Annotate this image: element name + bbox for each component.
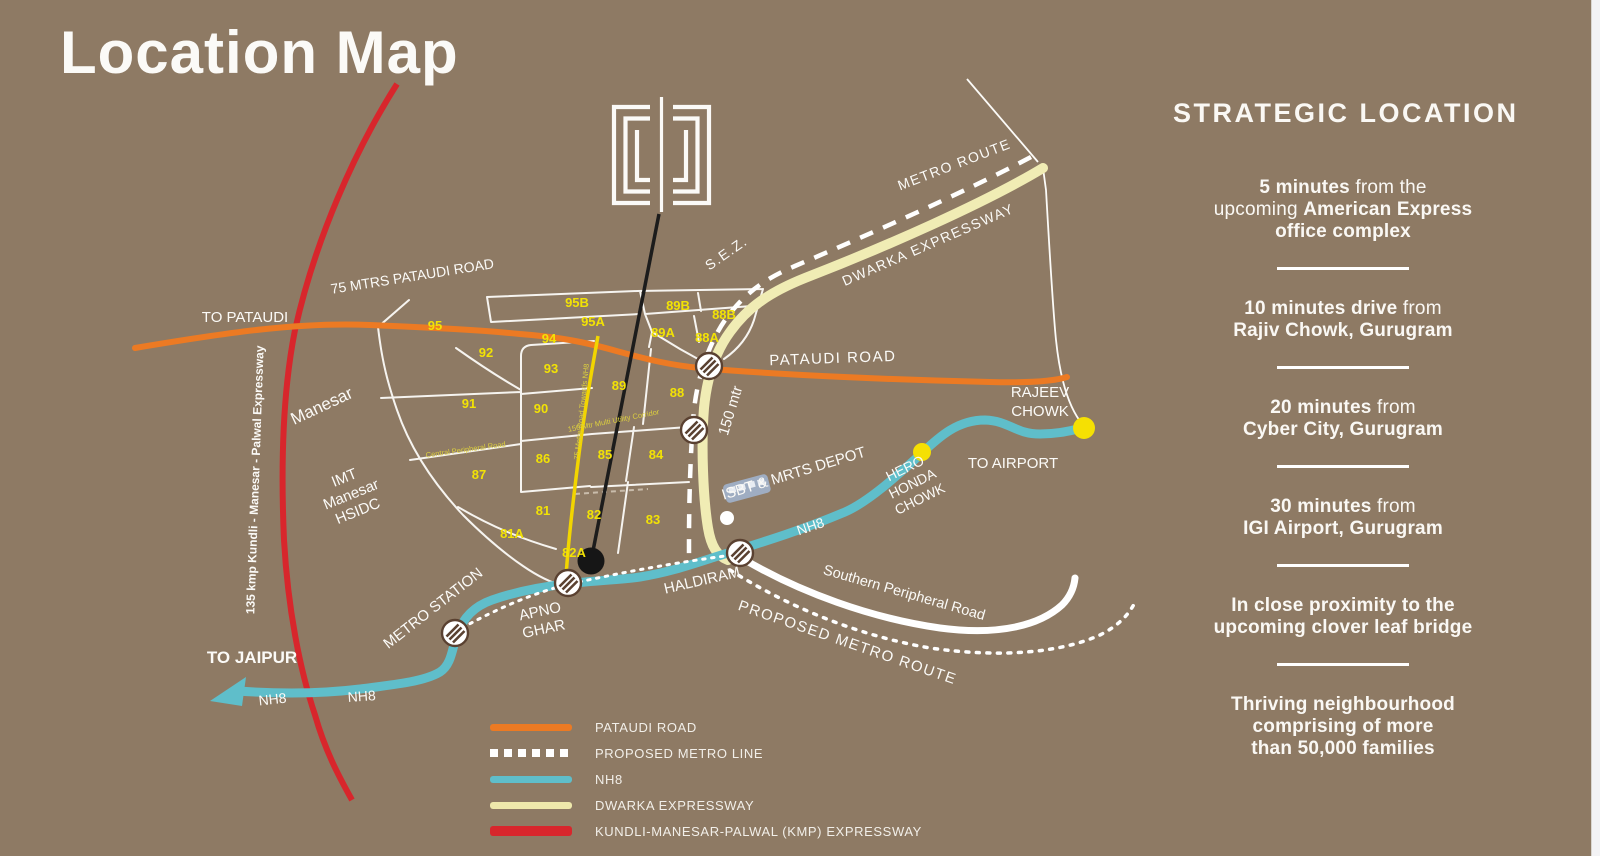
strategic-item-4: 30 minutes fromIGI Airport, Gurugram [1173,496,1513,540]
sector-label-95A: 95A [581,314,605,329]
sector-label-95: 95 [428,318,442,333]
label-proposed-metro-route: PROPOSED METRO ROUTE [736,597,959,688]
legend-swatch [490,724,572,731]
metro-station-icon [696,353,722,379]
metro-station-icon [727,540,753,566]
right-edge-strip [1591,0,1600,856]
legend-row: KUNDLI-MANESAR-PALWAL (KMP) EXPRESSWAY [490,818,922,844]
panel-divider [1277,663,1409,666]
legend-label: PATAUDI ROAD [595,720,697,735]
panel-divider [1277,564,1409,567]
strategic-item-6: Thriving neighbourhoodcomprising of more… [1173,694,1513,760]
label-nh8-a: NH8 [258,690,288,709]
sector-label-86: 86 [536,451,550,466]
label-rajeev-chowk-1: RAJEEV [1011,384,1069,401]
sector-label-94: 94 [542,331,557,346]
label-pataudi-road: PATAUDI ROAD [769,348,897,369]
legend-label: KUNDLI-MANESAR-PALWAL (KMP) EXPRESSWAY [595,824,922,839]
panel-divider [1277,465,1409,468]
sector-label-88B: 88B [712,307,736,322]
rajeev-chowk-dot [1073,417,1095,439]
legend-label: DWARKA EXPRESSWAY [595,798,754,813]
nh8-arrowhead [210,677,246,706]
legend-label: PROPOSED METRO LINE [595,746,763,761]
strategic-item-2: 10 minutes drive fromRajiv Chowk, Gurugr… [1173,298,1513,342]
label-central-peripheral-road: Central Peripheral Road [425,439,506,459]
minor-roads [967,79,1083,425]
sector-label-87: 87 [472,467,486,482]
panel-divider [1277,267,1409,270]
strategic-location-panel: STRATEGIC LOCATION 5 minutes from theupc… [1173,98,1513,760]
strategic-heading: STRATEGIC LOCATION [1173,98,1513,129]
label-metro-route: METRO ROUTE [895,135,1013,193]
sector-label-82A: 82A [562,545,586,560]
sector-label-84: 84 [649,447,664,462]
metro-station-icon [442,620,468,646]
sector-label-93: 93 [544,361,558,376]
label-75-mtrs-pataudi-road: 75 MTRS PATAUDI ROAD [330,255,495,297]
sector-label-95B: 95B [565,295,589,310]
label-to-pataudi: TO PATAUDI [202,309,288,326]
sector-label-88: 88 [670,385,684,400]
label-to-airport: TO AIRPORT [968,455,1058,472]
panel-divider [1277,366,1409,369]
sector-label-89A: 89A [651,325,675,340]
sector-label-88A: 88A [695,330,719,345]
location-map-page: Location Map [0,0,1600,856]
label-southern-peripheral-road: Southern Peripheral Road [821,562,987,624]
label-isbt-mrts-depot: ISBT & MRTS DEPOT [720,444,868,504]
isbt-dot [720,511,734,525]
sector-label-81A: 81A [500,526,524,541]
legend-row: NH8 [490,766,922,792]
strategic-item-5: In close proximity to theupcoming clover… [1173,595,1513,639]
label-kmp-expressway: 135 kmp Kundli - Manesar - Palwal Expres… [243,345,266,614]
label-imt-manesar-hsidc: IMT Manesar HSIDC [314,459,388,530]
metro-station-icon [681,417,707,443]
label-manesar: Manesar [288,383,356,428]
sector-label-92: 92 [479,345,493,360]
dashed-sector-line [575,489,648,494]
label-to-jaipur: TO JAIPUR [207,648,297,667]
strategic-items: 5 minutes from theupcoming American Expr… [1173,177,1513,760]
legend-swatch [490,802,572,809]
legend-row: DWARKA EXPRESSWAY [490,792,922,818]
metro-station-icon [555,570,581,596]
sector-label-89B: 89B [666,298,690,313]
brand-logo [614,97,709,212]
sector-label-91: 91 [462,396,476,411]
pataudi-road-line [135,324,1067,382]
legend-row: PROPOSED METRO LINE [490,740,922,766]
label-nh8-c: NH8 [795,514,827,538]
label-75-metre-road: 75 Metre Road Towards NH8 [572,363,591,460]
strategic-item-1: 5 minutes from theupcoming American Expr… [1173,177,1513,243]
sector-label-83: 83 [646,512,660,527]
sector-label-81: 81 [536,503,550,518]
sector-label-90: 90 [534,401,548,416]
legend-label: NH8 [595,772,623,787]
label-dwarka-expressway: DWARKA EXPRESSWAY [840,200,1017,289]
label-rajeev-chowk-2: CHOWK [1011,403,1069,420]
label-sez: S.E.Z. [702,233,750,274]
sector-label-89: 89 [612,378,626,393]
legend-swatch [490,776,572,783]
sector-label-85: 85 [598,447,612,462]
strategic-item-3: 20 minutes fromCyber City, Gurugram [1173,397,1513,441]
legend-swatch [490,749,572,757]
label-nh8-b: NH8 [347,687,376,705]
label-150-mtr: 150 mtr [715,384,746,438]
sector-label-82: 82 [587,507,601,522]
legend-swatch [490,826,572,836]
label-apno-ghar: APNO GHAR [517,599,567,642]
map-legend: PATAUDI ROADPROPOSED METRO LINENH8DWARKA… [490,714,922,844]
legend-row: PATAUDI ROAD [490,714,922,740]
